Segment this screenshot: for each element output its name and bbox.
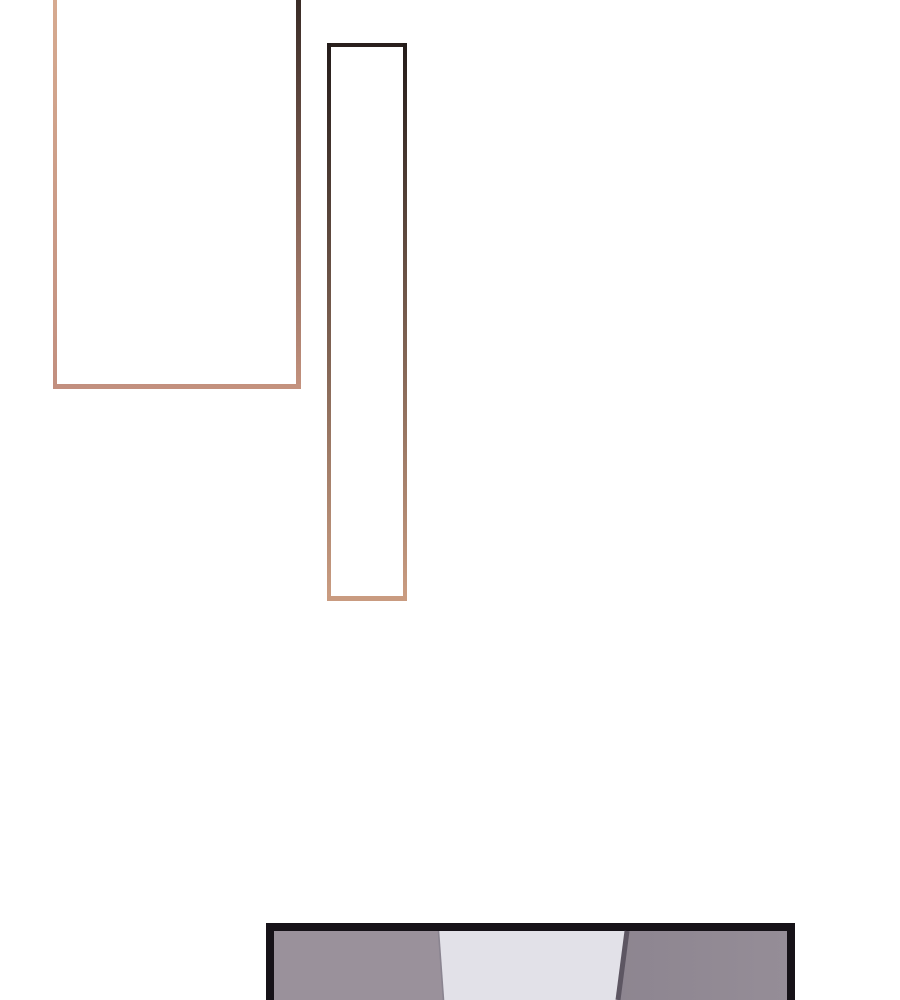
panel-bottom-wall-right xyxy=(618,931,787,1000)
panel-tall-border-left xyxy=(327,43,331,601)
panel-bottom-wall-left xyxy=(274,931,443,1000)
panel-large-border-right xyxy=(296,0,301,389)
panel-large-border-left xyxy=(53,0,57,389)
panel-large-border-bottom xyxy=(53,384,301,389)
panel-large-interior xyxy=(57,0,296,384)
webtoon-page xyxy=(0,0,900,1000)
panel-tall-interior xyxy=(331,47,403,596)
panel-tall-border-top xyxy=(327,43,407,47)
panel-bottom xyxy=(266,923,795,1000)
panel-bottom-wall-center xyxy=(438,931,627,1000)
panel-tall-border-right xyxy=(403,43,407,601)
panel-tall-border-bottom xyxy=(327,596,407,601)
